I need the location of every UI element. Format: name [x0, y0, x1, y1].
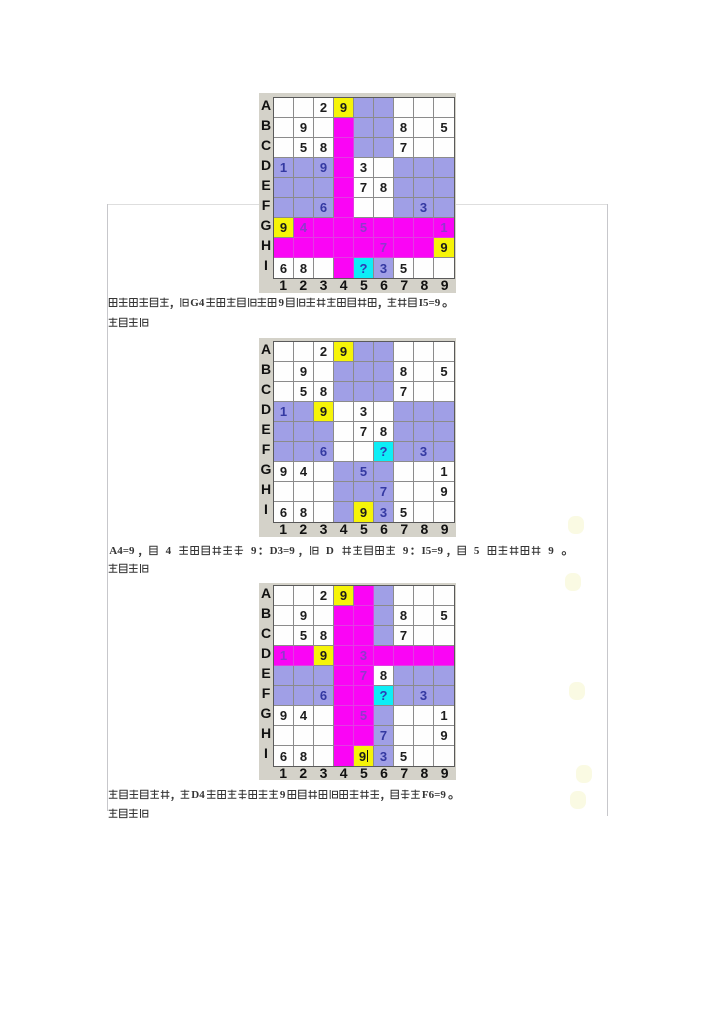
- svg-text:9: 9: [251, 545, 257, 557]
- svg-text:9: 9: [279, 297, 285, 309]
- svg-text:F6=9: F6=9: [422, 789, 446, 801]
- svg-text:I5=9: I5=9: [419, 297, 441, 309]
- svg-text:A4=9: A4=9: [109, 545, 135, 557]
- svg-text:9: 9: [403, 545, 409, 557]
- svg-text:D4: D4: [191, 789, 205, 801]
- svg-text:I5=9: I5=9: [422, 545, 444, 557]
- svg-text:9: 9: [280, 789, 286, 801]
- svg-text:5: 5: [474, 545, 480, 557]
- svg-text:D3=9: D3=9: [270, 545, 296, 557]
- svg-text:D: D: [326, 545, 334, 557]
- svg-text:9: 9: [548, 545, 554, 557]
- svg-text:4: 4: [166, 545, 172, 557]
- svg-text:G4: G4: [190, 297, 205, 309]
